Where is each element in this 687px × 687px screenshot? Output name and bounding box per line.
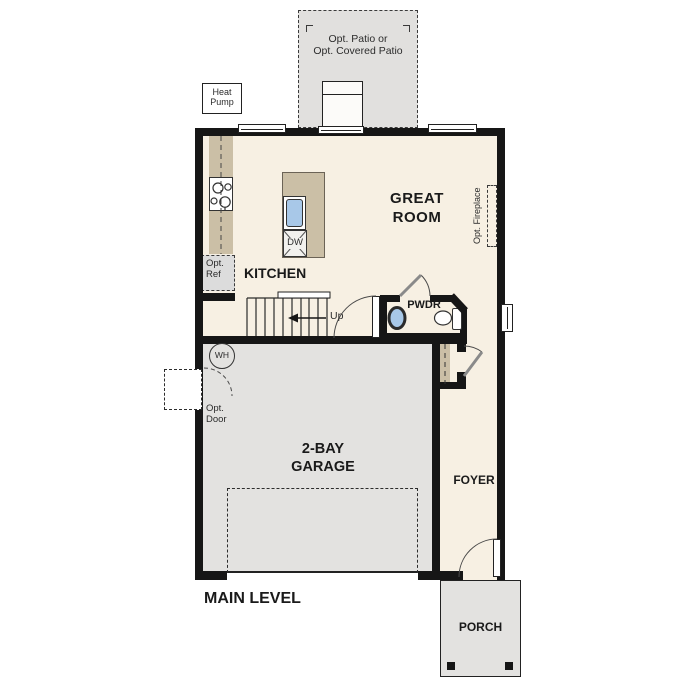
wall-pwdr-bottom — [380, 333, 467, 341]
main-level-label: MAIN LEVEL — [204, 590, 301, 608]
pwdr-toilet-tank — [452, 308, 462, 330]
patio-corner-mark-left — [306, 25, 313, 32]
dishwasher-label: DW — [284, 238, 306, 249]
pwdr-label: PWDR — [403, 299, 445, 312]
front-door-leaf — [493, 539, 501, 577]
wall-pwdr-top-left — [380, 295, 400, 302]
garage-entry-threshold — [440, 344, 450, 384]
opt-fireplace-label: Opt. Fireplace — [472, 183, 486, 249]
kitchen-label: KITCHEN — [244, 265, 306, 281]
great-room-label: GREAT ROOM — [363, 190, 471, 228]
porch-post-right — [505, 662, 513, 670]
opt-fireplace-box — [487, 185, 497, 247]
patio-sliding-door — [318, 126, 364, 134]
patio-corner-mark-right — [403, 25, 410, 32]
window-pane-line — [431, 129, 474, 130]
stairs-up-label: Up — [330, 310, 343, 322]
opt-door-label: Opt. Door — [206, 404, 242, 426]
porch-label: PORCH — [442, 621, 519, 635]
garage-label: 2-BAY GARAGE — [281, 440, 365, 476]
wall-kitchen-stub — [195, 293, 235, 301]
range-cooktop — [209, 177, 233, 211]
window-top-right — [428, 124, 477, 133]
foyer-label: FOYER — [448, 474, 500, 488]
window-pane-line — [241, 129, 283, 130]
heat-pump-label: Heat Pump — [202, 87, 242, 108]
slider-track-line — [321, 130, 361, 131]
island-sink-basin — [286, 199, 303, 227]
garage-door-panel — [227, 488, 418, 573]
opt-patio-label: Opt. Patio or Opt. Covered Patio — [300, 33, 416, 57]
wall-entry-bottom — [438, 382, 466, 389]
window-top-left — [238, 124, 286, 133]
opt-door-space — [164, 369, 202, 410]
opt-ref-label: Opt. Ref — [206, 259, 236, 281]
porch-post-left — [447, 662, 455, 670]
wall-left — [195, 128, 203, 580]
window-pane-line — [507, 307, 508, 329]
wall-right — [497, 128, 505, 580]
wall-entry-stub-top — [457, 336, 466, 352]
window-right-wall — [501, 304, 513, 332]
floor-plan: Opt. Patio or Opt. Covered Patio Heat Pu… — [0, 0, 687, 687]
wall-garage-foyer — [432, 344, 440, 571]
front-door-opening — [463, 571, 497, 580]
patio-stoop-step-line — [322, 81, 363, 95]
hall-door-leaf — [372, 296, 380, 338]
water-heater-label: WH — [209, 351, 235, 361]
